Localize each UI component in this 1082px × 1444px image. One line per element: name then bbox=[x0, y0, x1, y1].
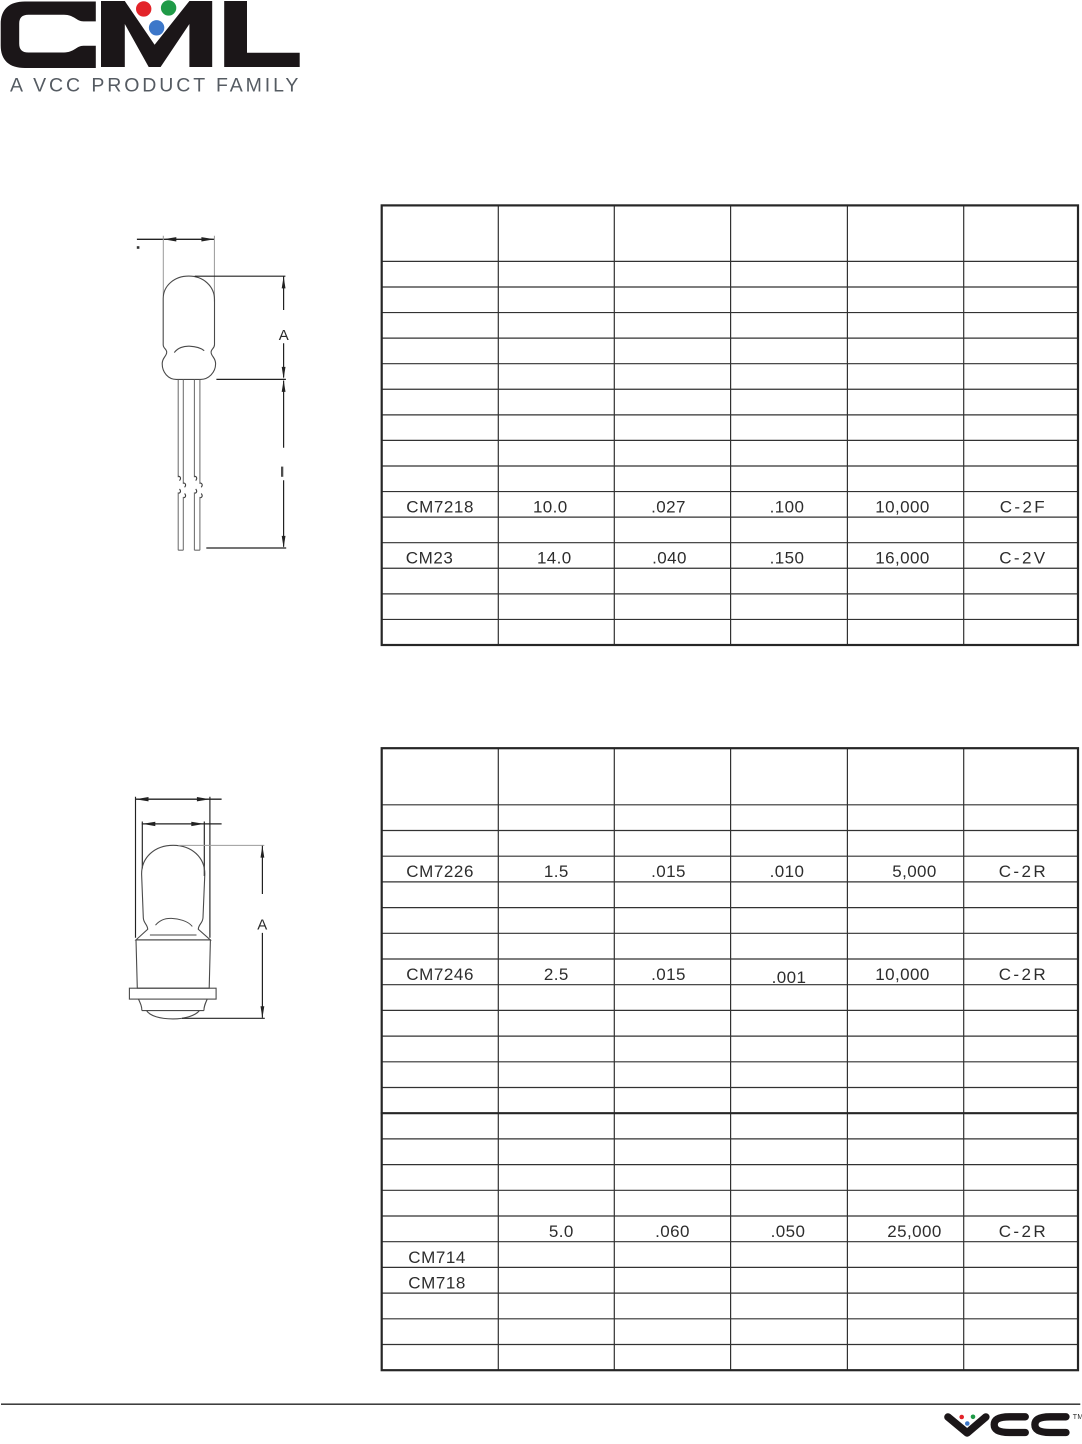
svg-text:.015: .015 bbox=[651, 862, 686, 881]
svg-text:10,000: 10,000 bbox=[875, 965, 929, 984]
svg-text:A: A bbox=[279, 327, 289, 344]
svg-text:14.0: 14.0 bbox=[537, 549, 572, 568]
svg-text:CM23: CM23 bbox=[406, 549, 454, 568]
svg-text:.001: .001 bbox=[772, 968, 807, 987]
svg-text:CM7246: CM7246 bbox=[406, 965, 474, 984]
svg-text:10,000: 10,000 bbox=[875, 498, 929, 517]
svg-text:TM: TM bbox=[1073, 1414, 1082, 1421]
svg-text:.100: .100 bbox=[770, 498, 805, 517]
svg-text:.015: .015 bbox=[651, 965, 686, 984]
svg-text:25,000: 25,000 bbox=[887, 1222, 941, 1241]
svg-text:5,000: 5,000 bbox=[892, 862, 937, 881]
svg-text:CM7226: CM7226 bbox=[406, 862, 474, 881]
svg-text:.050: .050 bbox=[771, 1222, 806, 1241]
svg-text:CM718: CM718 bbox=[408, 1274, 466, 1293]
svg-text:2.5: 2.5 bbox=[544, 965, 569, 984]
svg-text:C-2R: C-2R bbox=[999, 965, 1048, 984]
svg-text:C-2V: C-2V bbox=[999, 549, 1047, 568]
svg-text:A: A bbox=[257, 917, 267, 934]
svg-text:CM714: CM714 bbox=[408, 1248, 466, 1267]
svg-text:CM7218: CM7218 bbox=[406, 498, 474, 517]
svg-text:16,000: 16,000 bbox=[875, 549, 929, 568]
svg-text:A VCC PRODUCT FAMILY: A VCC PRODUCT FAMILY bbox=[10, 75, 301, 97]
svg-text:5.0: 5.0 bbox=[549, 1222, 574, 1241]
svg-text:1.5: 1.5 bbox=[544, 862, 569, 881]
svg-text:.027: .027 bbox=[651, 498, 686, 517]
svg-text:10.0: 10.0 bbox=[533, 498, 568, 517]
svg-text:C-2R: C-2R bbox=[999, 862, 1048, 881]
svg-text:.060: .060 bbox=[655, 1222, 690, 1241]
svg-text:C-2F: C-2F bbox=[1000, 498, 1047, 517]
svg-text:.010: .010 bbox=[770, 862, 805, 881]
svg-text:C-2R: C-2R bbox=[999, 1222, 1048, 1241]
svg-text:.150: .150 bbox=[770, 549, 805, 568]
svg-text:.040: .040 bbox=[652, 549, 687, 568]
